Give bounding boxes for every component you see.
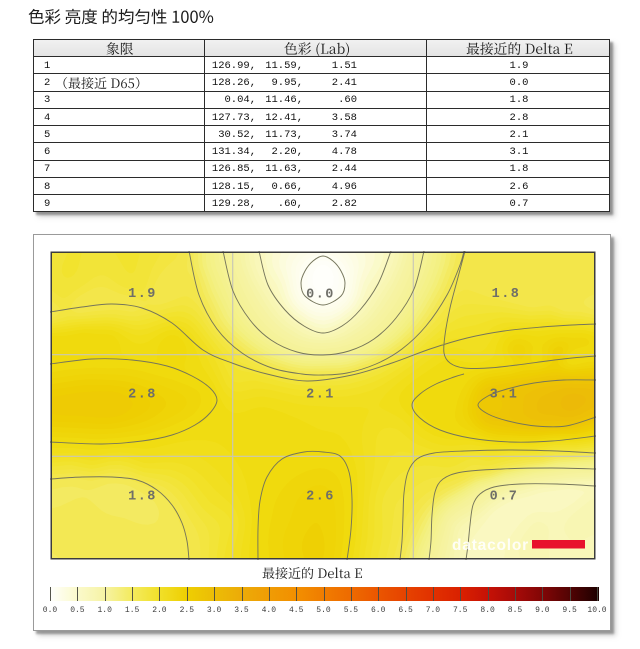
svg-text:2.1: 2.1 — [306, 388, 335, 403]
svg-text:0.7: 0.7 — [490, 490, 519, 505]
svg-text:2.6: 2.6 — [306, 490, 335, 505]
svg-text:datacolor: datacolor — [452, 537, 529, 554]
svg-text:0.0: 0.0 — [306, 288, 335, 303]
svg-text:1.8: 1.8 — [492, 287, 521, 302]
svg-text:2.8: 2.8 — [128, 388, 157, 403]
svg-text:1.8: 1.8 — [128, 490, 157, 505]
svg-text:3.1: 3.1 — [490, 388, 519, 403]
svg-text:1.9: 1.9 — [128, 287, 157, 302]
